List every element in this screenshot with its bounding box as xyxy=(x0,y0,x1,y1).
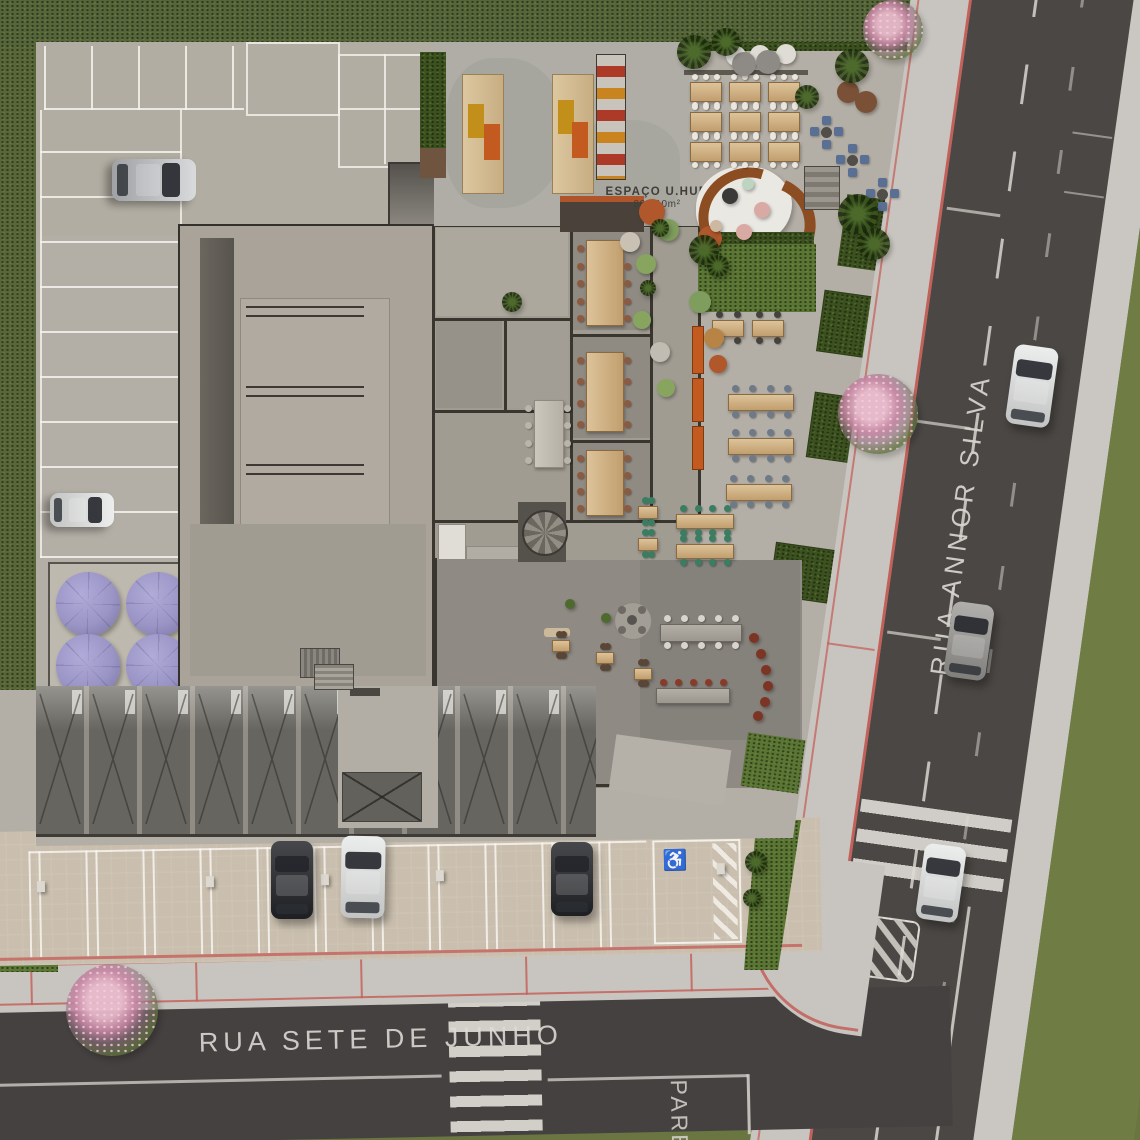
tree-palm xyxy=(677,35,711,69)
tree-palm xyxy=(795,85,819,109)
tree-palm xyxy=(858,228,890,260)
tree-palm xyxy=(502,292,522,312)
tree-palm xyxy=(745,851,767,873)
tree-palm xyxy=(707,255,729,277)
tree-palm xyxy=(712,28,740,56)
tree-layer xyxy=(0,0,1140,1140)
site-plan-render: RUA ANNOR SILVA RUA SETE DE JUNHO PARE xyxy=(0,0,1140,1140)
tree-palm xyxy=(640,280,656,296)
tree-pink xyxy=(863,0,923,60)
tree-palm xyxy=(835,49,869,83)
tree-palm xyxy=(651,219,669,237)
tree-pink xyxy=(838,374,918,454)
tree-pink xyxy=(66,964,158,1056)
tree-palm xyxy=(743,889,761,907)
